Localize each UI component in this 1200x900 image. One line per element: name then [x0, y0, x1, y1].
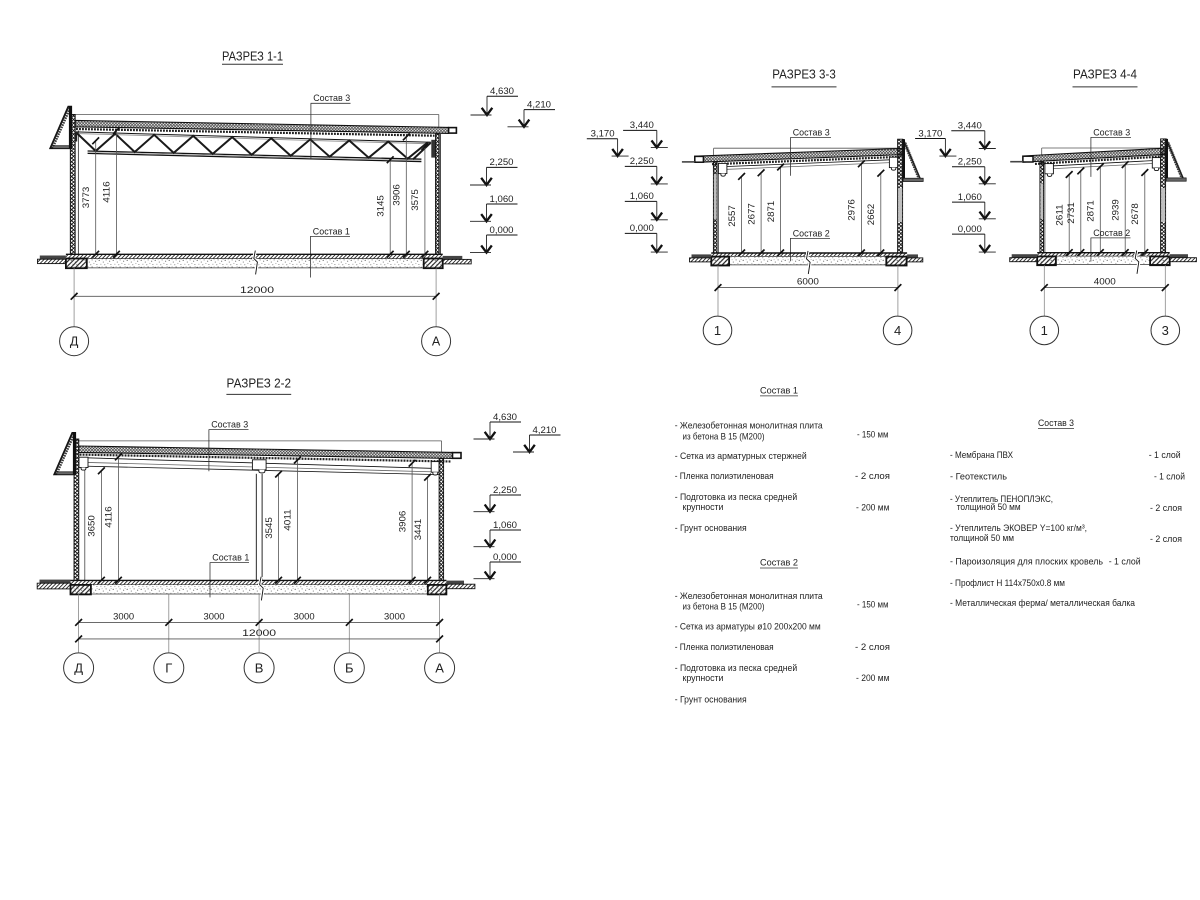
- svg-text:2871: 2871: [1086, 200, 1096, 222]
- svg-text:толщиной 50 мм: толщиной 50 мм: [957, 502, 1021, 512]
- svg-text:Состав 1: Состав 1: [212, 553, 249, 563]
- svg-text:4,630: 4,630: [493, 412, 517, 422]
- svg-text:4116: 4116: [102, 181, 112, 203]
- svg-text:Состав 3: Состав 3: [313, 93, 350, 103]
- svg-text:Состав 1: Состав 1: [313, 226, 350, 236]
- svg-text:4,630: 4,630: [490, 86, 514, 96]
- svg-text:4000: 4000: [1094, 277, 1116, 287]
- svg-text:- 2 слоя: - 2 слоя: [1150, 534, 1182, 544]
- svg-text:Д: Д: [74, 660, 83, 675]
- svg-text:- Мембрана ПВХ: - Мембрана ПВХ: [950, 450, 1013, 460]
- svg-text:Д: Д: [70, 335, 79, 349]
- svg-text:Состав 3: Состав 3: [793, 128, 830, 138]
- svg-text:3906: 3906: [392, 184, 402, 206]
- svg-text:2976: 2976: [847, 199, 857, 221]
- svg-text:3: 3: [1162, 323, 1169, 338]
- svg-text:- Пленка полиэтиленовая: - Пленка полиэтиленовая: [675, 471, 774, 481]
- svg-text:3,440: 3,440: [630, 120, 654, 130]
- svg-text:3650: 3650: [87, 515, 97, 537]
- svg-text:- Пароизоляция для плоских кр: - Пароизоляция для плоских кровель: [950, 556, 1103, 566]
- svg-text:0,000: 0,000: [490, 225, 514, 235]
- svg-text:2,250: 2,250: [958, 157, 982, 167]
- svg-text:3,440: 3,440: [958, 121, 982, 131]
- svg-text:1: 1: [1041, 323, 1048, 338]
- svg-text:- Профлист Н 114х750х0.8 мм: - Профлист Н 114х750х0.8 мм: [950, 578, 1065, 588]
- svg-text:3906: 3906: [397, 511, 407, 533]
- svg-text:Состав 1: Состав 1: [760, 386, 798, 397]
- svg-text:3000: 3000: [294, 611, 315, 621]
- svg-text:2,250: 2,250: [630, 156, 654, 166]
- svg-text:- 150 мм: - 150 мм: [857, 600, 889, 610]
- svg-text:1,060: 1,060: [958, 192, 982, 202]
- svg-text:12000: 12000: [240, 285, 274, 295]
- svg-text:1,060: 1,060: [493, 520, 517, 530]
- svg-text:Г: Г: [165, 660, 172, 675]
- svg-text:- 200 мм: - 200 мм: [856, 502, 890, 512]
- svg-text:- Пленка полиэтиленовая: - Пленка полиэтиленовая: [675, 642, 774, 652]
- svg-text:3,170: 3,170: [918, 128, 942, 138]
- svg-text:- 2 слоя: - 2 слоя: [855, 471, 890, 481]
- svg-text:- Подготовка из песка средней: - Подготовка из песка средней: [675, 492, 798, 502]
- svg-text:12000: 12000: [242, 628, 276, 638]
- svg-text:2557: 2557: [727, 205, 737, 227]
- svg-text:- 150 мм: - 150 мм: [857, 430, 889, 440]
- svg-text:- Подготовка из песка средней: - Подготовка из песка средней: [675, 663, 798, 673]
- svg-text:- 2 слоя: - 2 слоя: [1150, 503, 1182, 513]
- svg-text:- 2 слоя: - 2 слоя: [855, 642, 890, 652]
- svg-text:3000: 3000: [204, 611, 225, 621]
- svg-text:4: 4: [894, 323, 901, 338]
- svg-text:РАЗРЕЗ 1-1: РАЗРЕЗ 1-1: [222, 49, 283, 64]
- svg-text:3145: 3145: [376, 195, 386, 217]
- svg-text:2,250: 2,250: [493, 485, 517, 495]
- svg-text:- 1 слой: - 1 слой: [1149, 450, 1181, 460]
- svg-text:- 1 слой: - 1 слой: [1154, 471, 1185, 481]
- svg-text:2939: 2939: [1111, 199, 1121, 221]
- svg-text:А: А: [435, 660, 444, 675]
- svg-text:4011: 4011: [283, 509, 293, 531]
- svg-text:2678: 2678: [1130, 203, 1140, 225]
- svg-text:4,210: 4,210: [527, 99, 551, 109]
- svg-text:- Железобетонная монолитная: - Железобетонная монолитная плита: [675, 591, 824, 601]
- svg-text:1: 1: [714, 323, 721, 338]
- svg-text:Состав 2: Состав 2: [1093, 228, 1130, 238]
- svg-text:РАЗРЕЗ 3-3: РАЗРЕЗ 3-3: [772, 67, 836, 82]
- svg-text:крупности: крупности: [683, 502, 724, 512]
- svg-text:3,170: 3,170: [591, 129, 615, 139]
- svg-text:2677: 2677: [746, 203, 756, 225]
- svg-text:- 200 мм: - 200 мм: [856, 673, 890, 683]
- svg-text:- Грунт основания: - Грунт основания: [675, 523, 747, 533]
- svg-text:толщиной 50 мм: толщиной 50 мм: [950, 533, 1014, 543]
- svg-text:- Сетка из арматуры ø10 200х2: - Сетка из арматуры ø10 200х200 мм: [675, 621, 821, 631]
- svg-text:А: А: [432, 335, 441, 349]
- svg-text:0,000: 0,000: [630, 223, 654, 233]
- svg-text:3441: 3441: [413, 519, 423, 541]
- svg-text:- Утеплитель ЭКОВЕР Y=100 кг/: - Утеплитель ЭКОВЕР Y=100 кг/м³,: [950, 523, 1087, 533]
- svg-text:Состав 3: Состав 3: [211, 420, 248, 430]
- svg-text:- 1 слой: - 1 слой: [1109, 556, 1141, 566]
- svg-text:2,250: 2,250: [490, 157, 514, 167]
- svg-text:4,210: 4,210: [533, 425, 557, 435]
- svg-text:0,000: 0,000: [493, 552, 517, 562]
- svg-text:1,060: 1,060: [630, 191, 654, 201]
- svg-text:Состав 3: Состав 3: [1038, 418, 1074, 429]
- svg-text:- Сетка из арматурных стержне: - Сетка из арматурных стержней: [675, 451, 807, 461]
- svg-text:2662: 2662: [866, 204, 876, 226]
- svg-text:Б: Б: [345, 660, 354, 675]
- svg-text:Состав 2: Состав 2: [760, 558, 798, 569]
- svg-text:2611: 2611: [1055, 204, 1065, 226]
- svg-text:3000: 3000: [113, 611, 134, 621]
- svg-text:В: В: [255, 660, 264, 675]
- svg-text:3000: 3000: [384, 611, 405, 621]
- svg-text:- Железобетонная монолитная: - Железобетонная монолитная плита: [675, 421, 824, 431]
- svg-text:2731: 2731: [1066, 202, 1076, 224]
- svg-text:Состав 3: Состав 3: [1093, 127, 1130, 137]
- svg-text:4116: 4116: [104, 506, 114, 528]
- svg-text:3575: 3575: [410, 189, 420, 211]
- svg-text:3545: 3545: [264, 517, 274, 539]
- svg-text:Состав 2: Состав 2: [793, 228, 830, 238]
- svg-text:РАЗРЕЗ 2-2: РАЗРЕЗ 2-2: [227, 376, 292, 391]
- svg-text:крупности: крупности: [683, 673, 724, 683]
- svg-text:0,000: 0,000: [958, 224, 982, 234]
- svg-text:- Металлическая ферма/ металл: - Металлическая ферма/ металлическая бал…: [950, 598, 1136, 608]
- svg-text:- Геотекстиль: - Геотекстиль: [950, 471, 1007, 481]
- svg-text:из бетона В 15 (М200): из бетона В 15 (М200): [683, 432, 765, 442]
- svg-text:1,060: 1,060: [490, 194, 514, 204]
- svg-text:РАЗРЕЗ 4-4: РАЗРЕЗ 4-4: [1073, 67, 1137, 82]
- svg-text:2871: 2871: [766, 201, 776, 223]
- svg-text:- Грунт основания: - Грунт основания: [675, 694, 747, 704]
- svg-text:6000: 6000: [797, 277, 819, 287]
- svg-text:3773: 3773: [81, 187, 91, 209]
- svg-text:из бетона В 15 (М200): из бетона В 15 (М200): [683, 602, 765, 612]
